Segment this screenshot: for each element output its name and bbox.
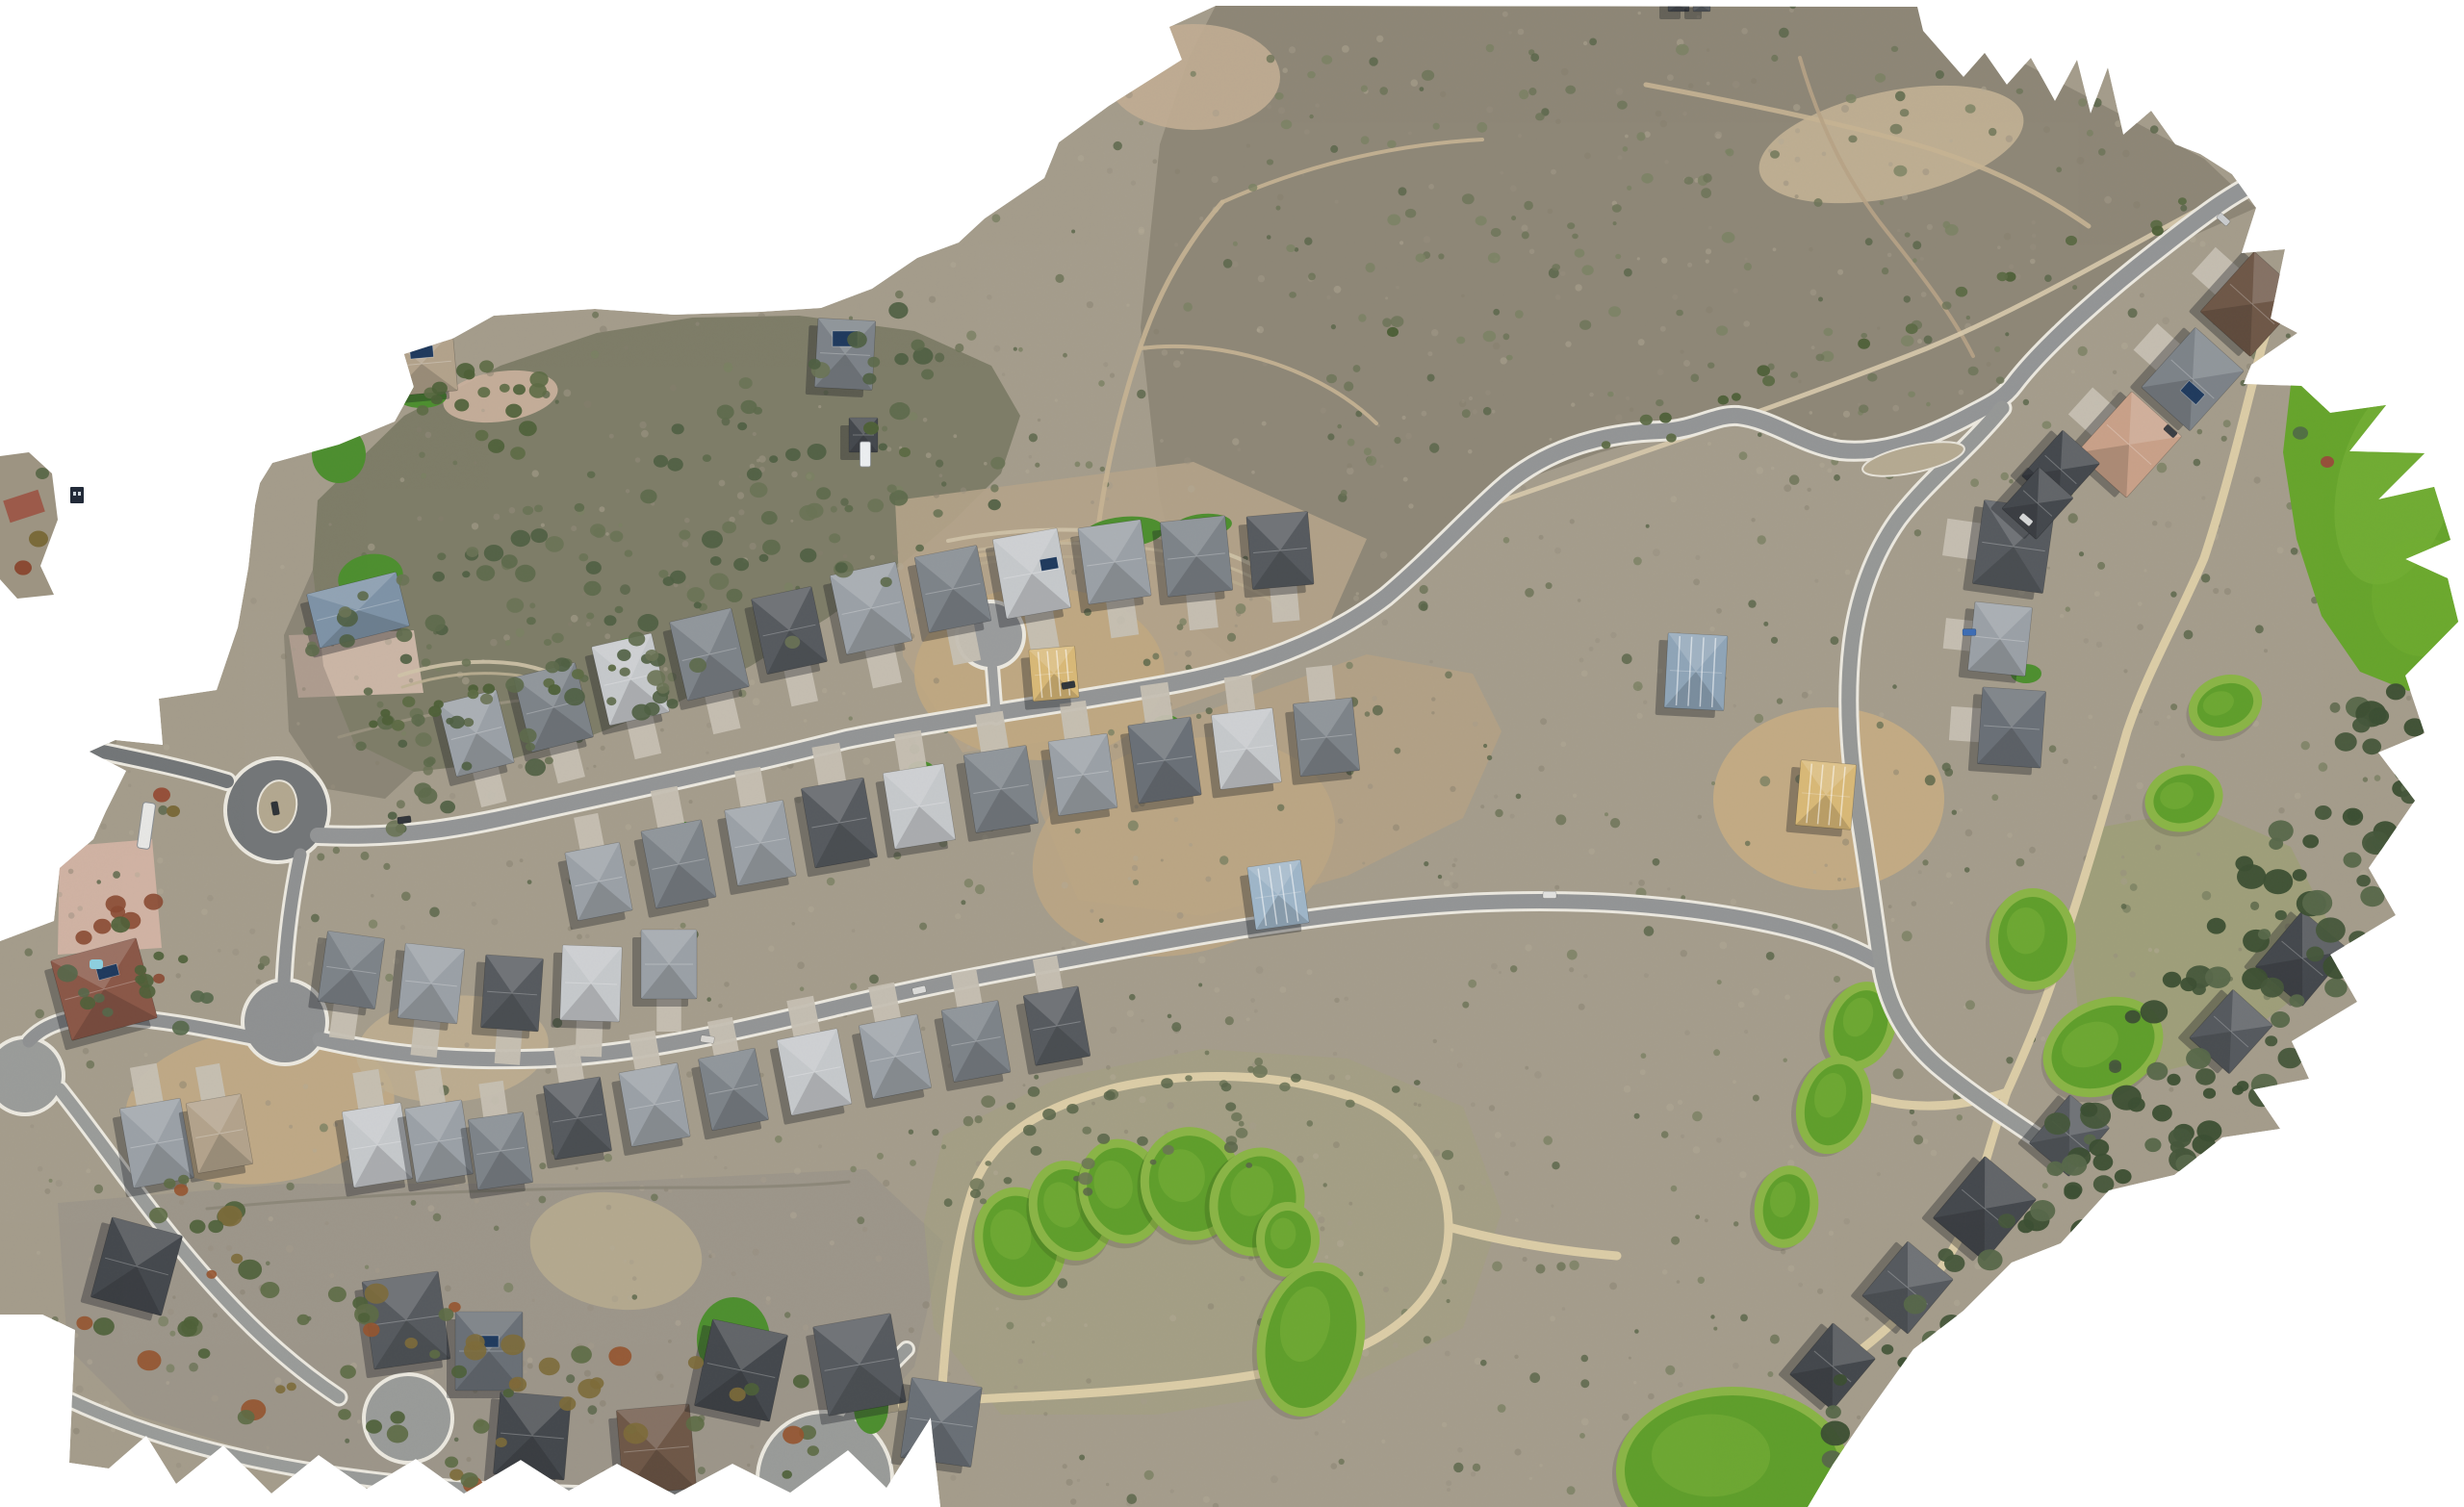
tree — [2064, 1245, 2091, 1268]
tree — [2026, 1327, 2053, 1350]
tree — [704, 1494, 727, 1507]
tree — [1921, 1362, 1938, 1377]
roof-hip-shade — [2300, 175, 2367, 239]
roof-ridge-light — [1668, 0, 1689, 5]
tree — [598, 1500, 617, 1507]
tree — [1893, 1503, 1912, 1507]
tree — [2399, 861, 2424, 882]
tree — [2423, 779, 2452, 805]
tree — [1957, 1363, 1972, 1376]
tree — [1988, 1404, 2009, 1422]
tree — [29, 531, 48, 548]
tree — [501, 1483, 511, 1492]
tree — [2049, 1271, 2073, 1292]
tree — [2109, 1223, 2127, 1239]
roof-ridge-line — [2324, 178, 2364, 212]
tree — [2038, 1262, 2066, 1286]
tree — [2448, 714, 2464, 738]
tree — [2408, 873, 2433, 894]
house-shadow — [2289, 150, 2376, 239]
tree — [2103, 1201, 2132, 1226]
tree — [1919, 1494, 1937, 1507]
tree — [2398, 879, 2416, 894]
tree — [14, 560, 32, 575]
tree — [746, 1502, 761, 1507]
left-edge-fragment — [0, 452, 58, 599]
tree — [2400, 887, 2422, 907]
tree — [2076, 1285, 2104, 1309]
tree — [2459, 731, 2464, 756]
house — [2289, 144, 2388, 244]
tree — [2013, 1302, 2032, 1318]
roof-ridge-light — [1693, 0, 1710, 6]
tree — [506, 1497, 518, 1507]
tree — [2456, 802, 2464, 812]
mosaic-content — [0, 0, 2464, 1507]
tree — [2141, 1184, 2169, 1209]
tree — [571, 1493, 582, 1502]
tree — [36, 468, 49, 479]
tree — [2428, 830, 2450, 847]
tree — [1950, 1409, 1963, 1420]
tree — [2032, 1361, 2059, 1384]
tree — [1878, 1415, 1903, 1436]
tree — [1950, 1319, 1973, 1339]
tree — [2031, 1341, 2061, 1367]
tree — [1920, 1444, 1938, 1460]
tree — [1949, 1427, 1971, 1446]
tree — [2109, 1212, 2126, 1226]
tree — [2017, 1298, 2046, 1323]
tree — [2460, 742, 2464, 756]
tree — [1888, 1471, 1914, 1494]
tree — [1878, 1471, 1895, 1486]
tree — [1941, 1408, 1961, 1424]
photo-grain — [0, 0, 2464, 1507]
tree — [2112, 1258, 2133, 1276]
tree — [2410, 878, 2428, 893]
tree — [520, 1474, 532, 1485]
tree — [1951, 1334, 1982, 1360]
tree — [2401, 852, 2413, 862]
tree — [2114, 1276, 2139, 1297]
tree — [1928, 1360, 1949, 1378]
roof — [2300, 150, 2388, 239]
mosaic-islands — [0, 452, 84, 599]
tree — [420, 1485, 445, 1506]
tree — [2421, 759, 2444, 779]
tree — [2095, 1245, 2117, 1264]
tree — [1956, 1441, 1979, 1461]
tree — [2101, 1275, 2121, 1292]
orthomosaic-page — [0, 0, 2464, 1507]
tree — [2000, 1318, 2015, 1332]
tree — [2431, 732, 2457, 754]
tree — [2458, 806, 2464, 827]
tree — [2451, 792, 2464, 815]
sign-glyph — [73, 492, 76, 496]
monument-sign — [70, 487, 84, 503]
tree — [2098, 1214, 2121, 1235]
tree — [1937, 1424, 1949, 1435]
sign-glyph — [78, 492, 81, 496]
roof-ridge-light — [2322, 150, 2388, 214]
tree — [2441, 816, 2464, 836]
tree — [1939, 1350, 1968, 1374]
tree — [2393, 859, 2414, 877]
tree — [2019, 1271, 2041, 1290]
tree — [521, 1473, 535, 1486]
orthomosaic-map — [0, 0, 2464, 1507]
tree — [2420, 751, 2444, 772]
tree — [1850, 1498, 1866, 1507]
tree — [2156, 1178, 2173, 1192]
tree — [1971, 1323, 1995, 1344]
